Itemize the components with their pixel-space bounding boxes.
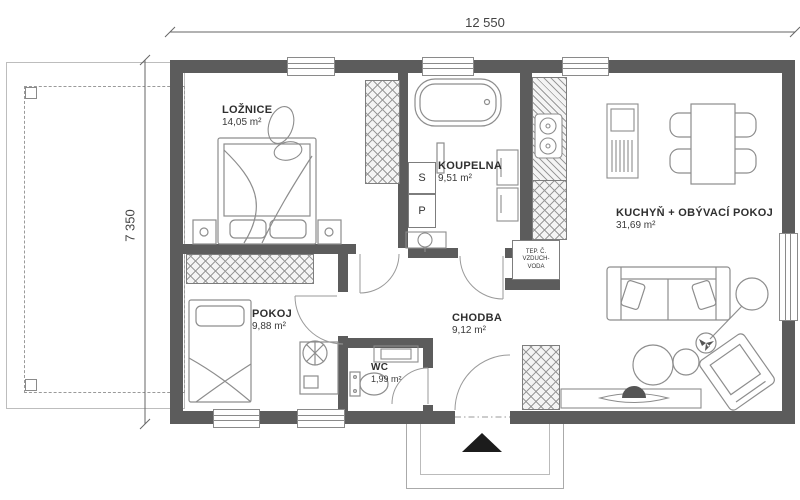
heat-pump-label-line2: VZDUCH- [523,256,550,264]
door-bathroom [460,256,503,299]
exterior-wall-left [170,60,183,424]
wall-wc-north [338,338,433,348]
washer-box: P [408,194,436,228]
room-label-loznice: LOŽNICE 14,05 m² [222,104,272,128]
floor-plan: TEP. Č. VZDUCH- VODA S P [0,0,800,500]
double-bed-icon [218,138,316,244]
floor-lamp-icon [696,278,768,353]
exterior-wall-top [170,60,795,73]
heat-pump-label-line1: TEP. Č. [526,249,546,257]
dimension-width-label: 12 550 [445,15,525,30]
room-area: 1,99 m² [371,374,402,384]
door-bedroom [360,254,399,293]
washer-label: P [418,205,425,217]
dryer-box: S [408,162,436,194]
room-name: KOUPELNA [438,160,502,172]
kitchen-counter-lower-hatch [532,180,567,240]
kidsroom-wardrobe-hatch [186,254,314,284]
desk-icon [300,342,338,394]
heat-pump-label-line3: VODA [527,264,544,272]
entrance-door-gap [455,410,510,425]
room-label-wc: WC 1,99 m² [371,362,402,384]
terrace-roof-dashed-outline [24,86,185,393]
wall-bathroom-kitchen [520,73,532,240]
room-name: KUCHYŇ + OBÝVACÍ POKOJ [616,207,773,219]
coffee-tables-icon [633,345,699,385]
dryer-label: S [418,172,425,184]
room-name: CHODBA [452,312,502,324]
terrace-post [25,87,37,99]
nightstand-icon [193,220,341,244]
desk-chair-icon [303,341,327,365]
room-area: 9,51 m² [438,173,502,184]
room-name: POKOJ [252,308,292,320]
porch-inner [420,424,550,475]
room-label-kuchyn: KUCHYŇ + OBÝVACÍ POKOJ 31,69 m² [616,207,773,231]
bedroom-wardrobe-hatch [365,80,400,184]
room-area: 31,69 m² [616,220,773,231]
bathtub-icon [415,79,501,126]
wall-wc-east-upper [423,338,433,368]
tall-cabinet-icon [607,104,638,178]
window-bathroom [422,57,474,76]
tv-cabinet-icon [561,386,701,408]
wc-sink-icon [374,346,418,362]
room-area: 9,88 m² [252,321,292,332]
armchair-icon [698,332,777,412]
single-bed-icon [189,300,251,402]
kitchen-counter-hatch [532,77,567,182]
dining-chairs-icon [670,113,756,173]
room-label-koupelna: KOUPELNA 9,51 m² [438,160,502,184]
wall-bathroom-south-left [408,248,458,258]
window-kidsroom-2 [297,409,345,428]
terrace-post [25,379,37,391]
window-kidsroom-1 [213,409,260,428]
wall-bedroom-south [183,244,356,254]
dining-table-icon [691,104,735,184]
room-label-chodba: CHODBA 9,12 m² [452,312,502,336]
wall-wc-east-lower [423,405,433,412]
door-entrance [455,355,510,417]
room-name: LOŽNICE [222,104,272,116]
wall-room-hall-upper [338,254,348,292]
entrance-closet-hatch [522,345,560,410]
room-name: WC [371,362,402,373]
window-livingroom [779,233,798,321]
room-label-pokoj: POKOJ 9,88 m² [252,308,292,332]
room-area: 14,05 m² [222,117,272,128]
sofa-icon [607,267,730,320]
heat-pump-unit: TEP. Č. VZDUCH- VODA [512,240,560,280]
door-kidsroom [295,296,343,344]
dimension-height-label: 7 350 [123,196,138,256]
window-bedroom [287,57,335,76]
window-kitchen [562,57,609,76]
room-area: 9,12 m² [452,325,502,336]
